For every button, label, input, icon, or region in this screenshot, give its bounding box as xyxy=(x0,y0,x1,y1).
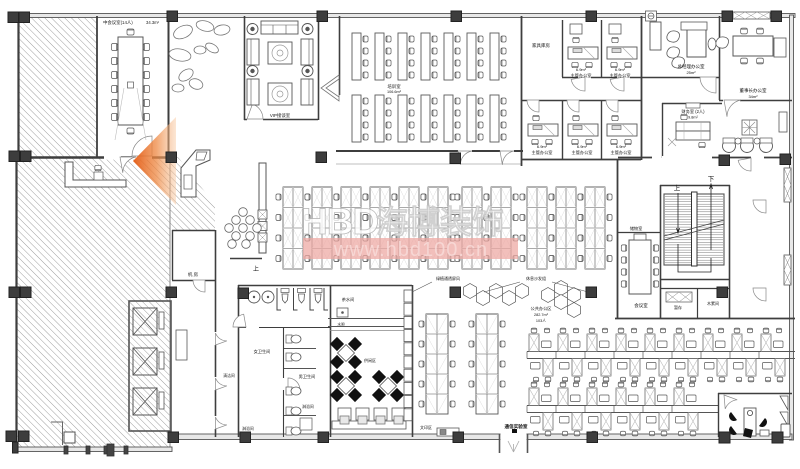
svg-text:下: 下 xyxy=(708,175,715,183)
svg-text:主管办公室: 主管办公室 xyxy=(572,149,593,156)
svg-text:海博装饰: 海博装饰 xyxy=(376,204,504,240)
svg-text:暂存: 暂存 xyxy=(674,304,682,310)
svg-text:9.8m²: 9.8m² xyxy=(688,116,698,120)
svg-text:文印区: 文印区 xyxy=(420,424,432,430)
svg-text:家具库房: 家具库房 xyxy=(532,42,550,49)
svg-text:6.9m²: 6.9m² xyxy=(616,144,627,149)
svg-text:6.9m²: 6.9m² xyxy=(576,67,587,72)
svg-text:淋浴间: 淋浴间 xyxy=(242,426,254,431)
svg-text:会议室: 会议室 xyxy=(634,302,648,309)
svg-text:茶水间: 茶水间 xyxy=(342,296,355,303)
svg-text:282.7m²: 282.7m² xyxy=(534,313,549,317)
svg-text:上: 上 xyxy=(253,265,259,273)
svg-text:通信实验室: 通信实验室 xyxy=(505,423,528,430)
svg-text:上: 上 xyxy=(674,183,681,192)
svg-text:www.hbd100.cn: www.hbd100.cn xyxy=(333,239,488,261)
svg-text:淋浴间: 淋浴间 xyxy=(302,404,314,409)
svg-text:清洁间: 清洁间 xyxy=(223,373,235,378)
svg-text:HBD: HBD xyxy=(301,201,378,242)
svg-text:总经理办公室: 总经理办公室 xyxy=(678,63,705,70)
svg-text:VIP接谈室: VIP接谈室 xyxy=(270,112,291,119)
svg-text:106.6m²: 106.6m² xyxy=(387,90,402,94)
svg-text:6.9m²: 6.9m² xyxy=(537,144,548,149)
svg-text:34m²: 34m² xyxy=(748,94,758,99)
svg-text:储物室: 储物室 xyxy=(630,225,643,232)
svg-text:主管办公室: 主管办公室 xyxy=(611,149,632,156)
svg-text:中会议室(14人): 中会议室(14人) xyxy=(103,19,133,26)
svg-text:董事长办公室: 董事长办公室 xyxy=(740,87,767,94)
svg-text:男卫生间: 男卫生间 xyxy=(299,373,316,380)
svg-text:主管办公室: 主管办公室 xyxy=(610,72,631,79)
svg-text:木累间: 木累间 xyxy=(707,300,719,306)
svg-text:供闲区: 供闲区 xyxy=(364,357,376,363)
svg-text:主管办公室: 主管办公室 xyxy=(532,149,553,156)
svg-text:103人: 103人 xyxy=(536,318,546,323)
svg-text:水吧: 水吧 xyxy=(337,322,345,327)
svg-text:绿植通透屏风: 绿植通透屏风 xyxy=(436,275,460,281)
svg-text:机 房: 机 房 xyxy=(188,271,199,278)
svg-text:25m²: 25m² xyxy=(686,70,696,75)
svg-text:公共办公区: 公共办公区 xyxy=(531,305,552,312)
svg-text:34.3m²: 34.3m² xyxy=(146,20,160,25)
svg-text:财务室 (2人): 财务室 (2人) xyxy=(681,108,705,115)
svg-text:培训室: 培训室 xyxy=(387,83,401,90)
svg-text:6.9m²: 6.9m² xyxy=(577,144,588,149)
svg-text:主管办公室: 主管办公室 xyxy=(571,72,592,79)
svg-text:休息沙发组: 休息沙发组 xyxy=(526,275,546,281)
svg-text:6.9m²: 6.9m² xyxy=(615,67,626,72)
svg-text:女卫生间: 女卫生间 xyxy=(254,348,271,355)
